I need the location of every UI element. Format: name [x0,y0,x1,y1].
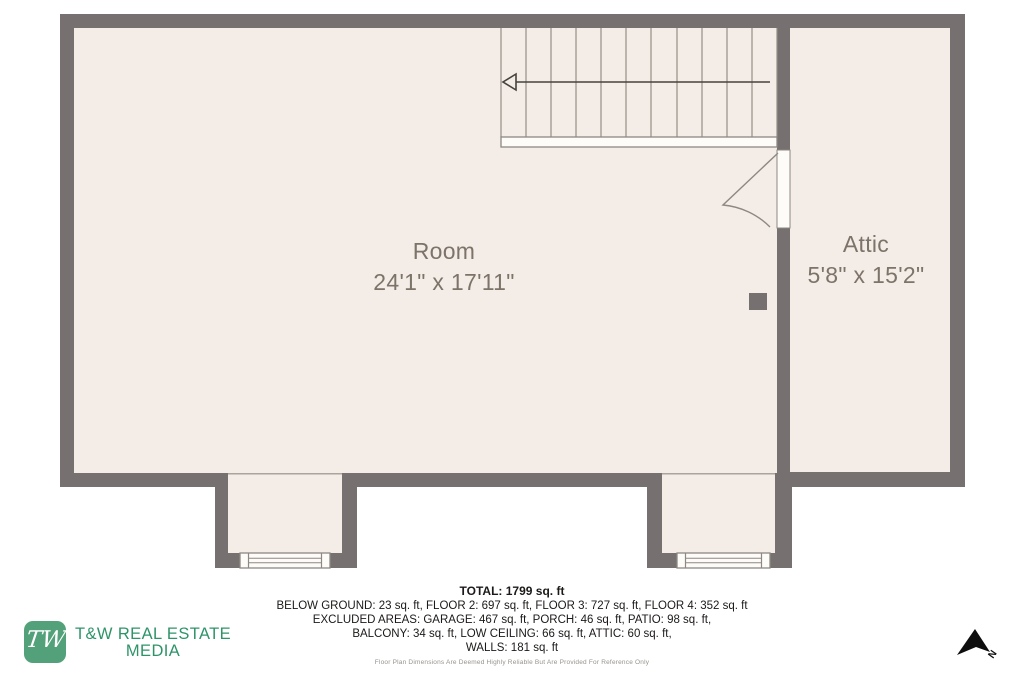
window-1 [240,553,330,568]
area-line-floors: BELOW GROUND: 23 sq. ft, FLOOR 2: 697 sq… [0,599,1024,613]
attic-dimensions: 5'8" x 15'2" [766,260,966,291]
room-label: Room 24'1" x 17'11" [294,236,594,298]
wall-bottom-mid-seg [357,473,647,487]
window-2 [677,553,770,568]
chimney-post [749,293,767,310]
wall-attic-bottom [790,472,965,487]
room-dimensions: 24'1" x 17'11" [294,267,594,298]
wall-top [60,14,965,28]
attic-label: Attic 5'8" x 15'2" [766,229,966,291]
wall-interior-upper [777,28,790,151]
brand-name-line2: MEDIA [75,643,231,660]
door-opening [777,150,790,228]
dormer2-floor [662,473,775,553]
dormer1-floor [228,473,342,553]
room-name: Room [294,236,594,267]
total-area: TOTAL: 1799 sq. ft [0,584,1024,599]
logo-monogram-box: TW [24,621,66,663]
brand-name-line1: T&W REAL ESTATE [75,626,231,643]
floorplan-page: N Room 24'1" x 17'11" Attic 5'8" x 15'2"… [0,0,1024,683]
logo-monogram: TW [24,629,67,655]
wall-left [60,14,74,487]
brand-logo: TW T&W REAL ESTATE MEDIA [24,621,231,663]
attic-name: Attic [766,229,966,260]
floorplan-drawing: N [0,0,1024,683]
wall-bottom-left-seg [60,473,228,487]
stair-stringer [501,137,777,147]
brand-name: T&W REAL ESTATE MEDIA [75,621,231,660]
